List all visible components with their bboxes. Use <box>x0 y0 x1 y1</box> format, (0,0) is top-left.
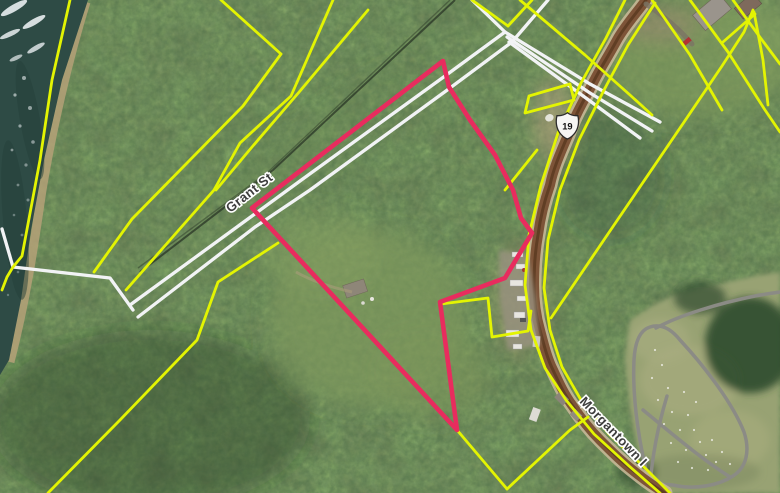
satellite-map: Grant St Morgantown I 19 <box>0 0 780 493</box>
route-number: 19 <box>562 121 572 131</box>
aerial-basemap <box>0 0 780 493</box>
map-canvas[interactable]: Grant St Morgantown I 19 <box>0 0 780 493</box>
